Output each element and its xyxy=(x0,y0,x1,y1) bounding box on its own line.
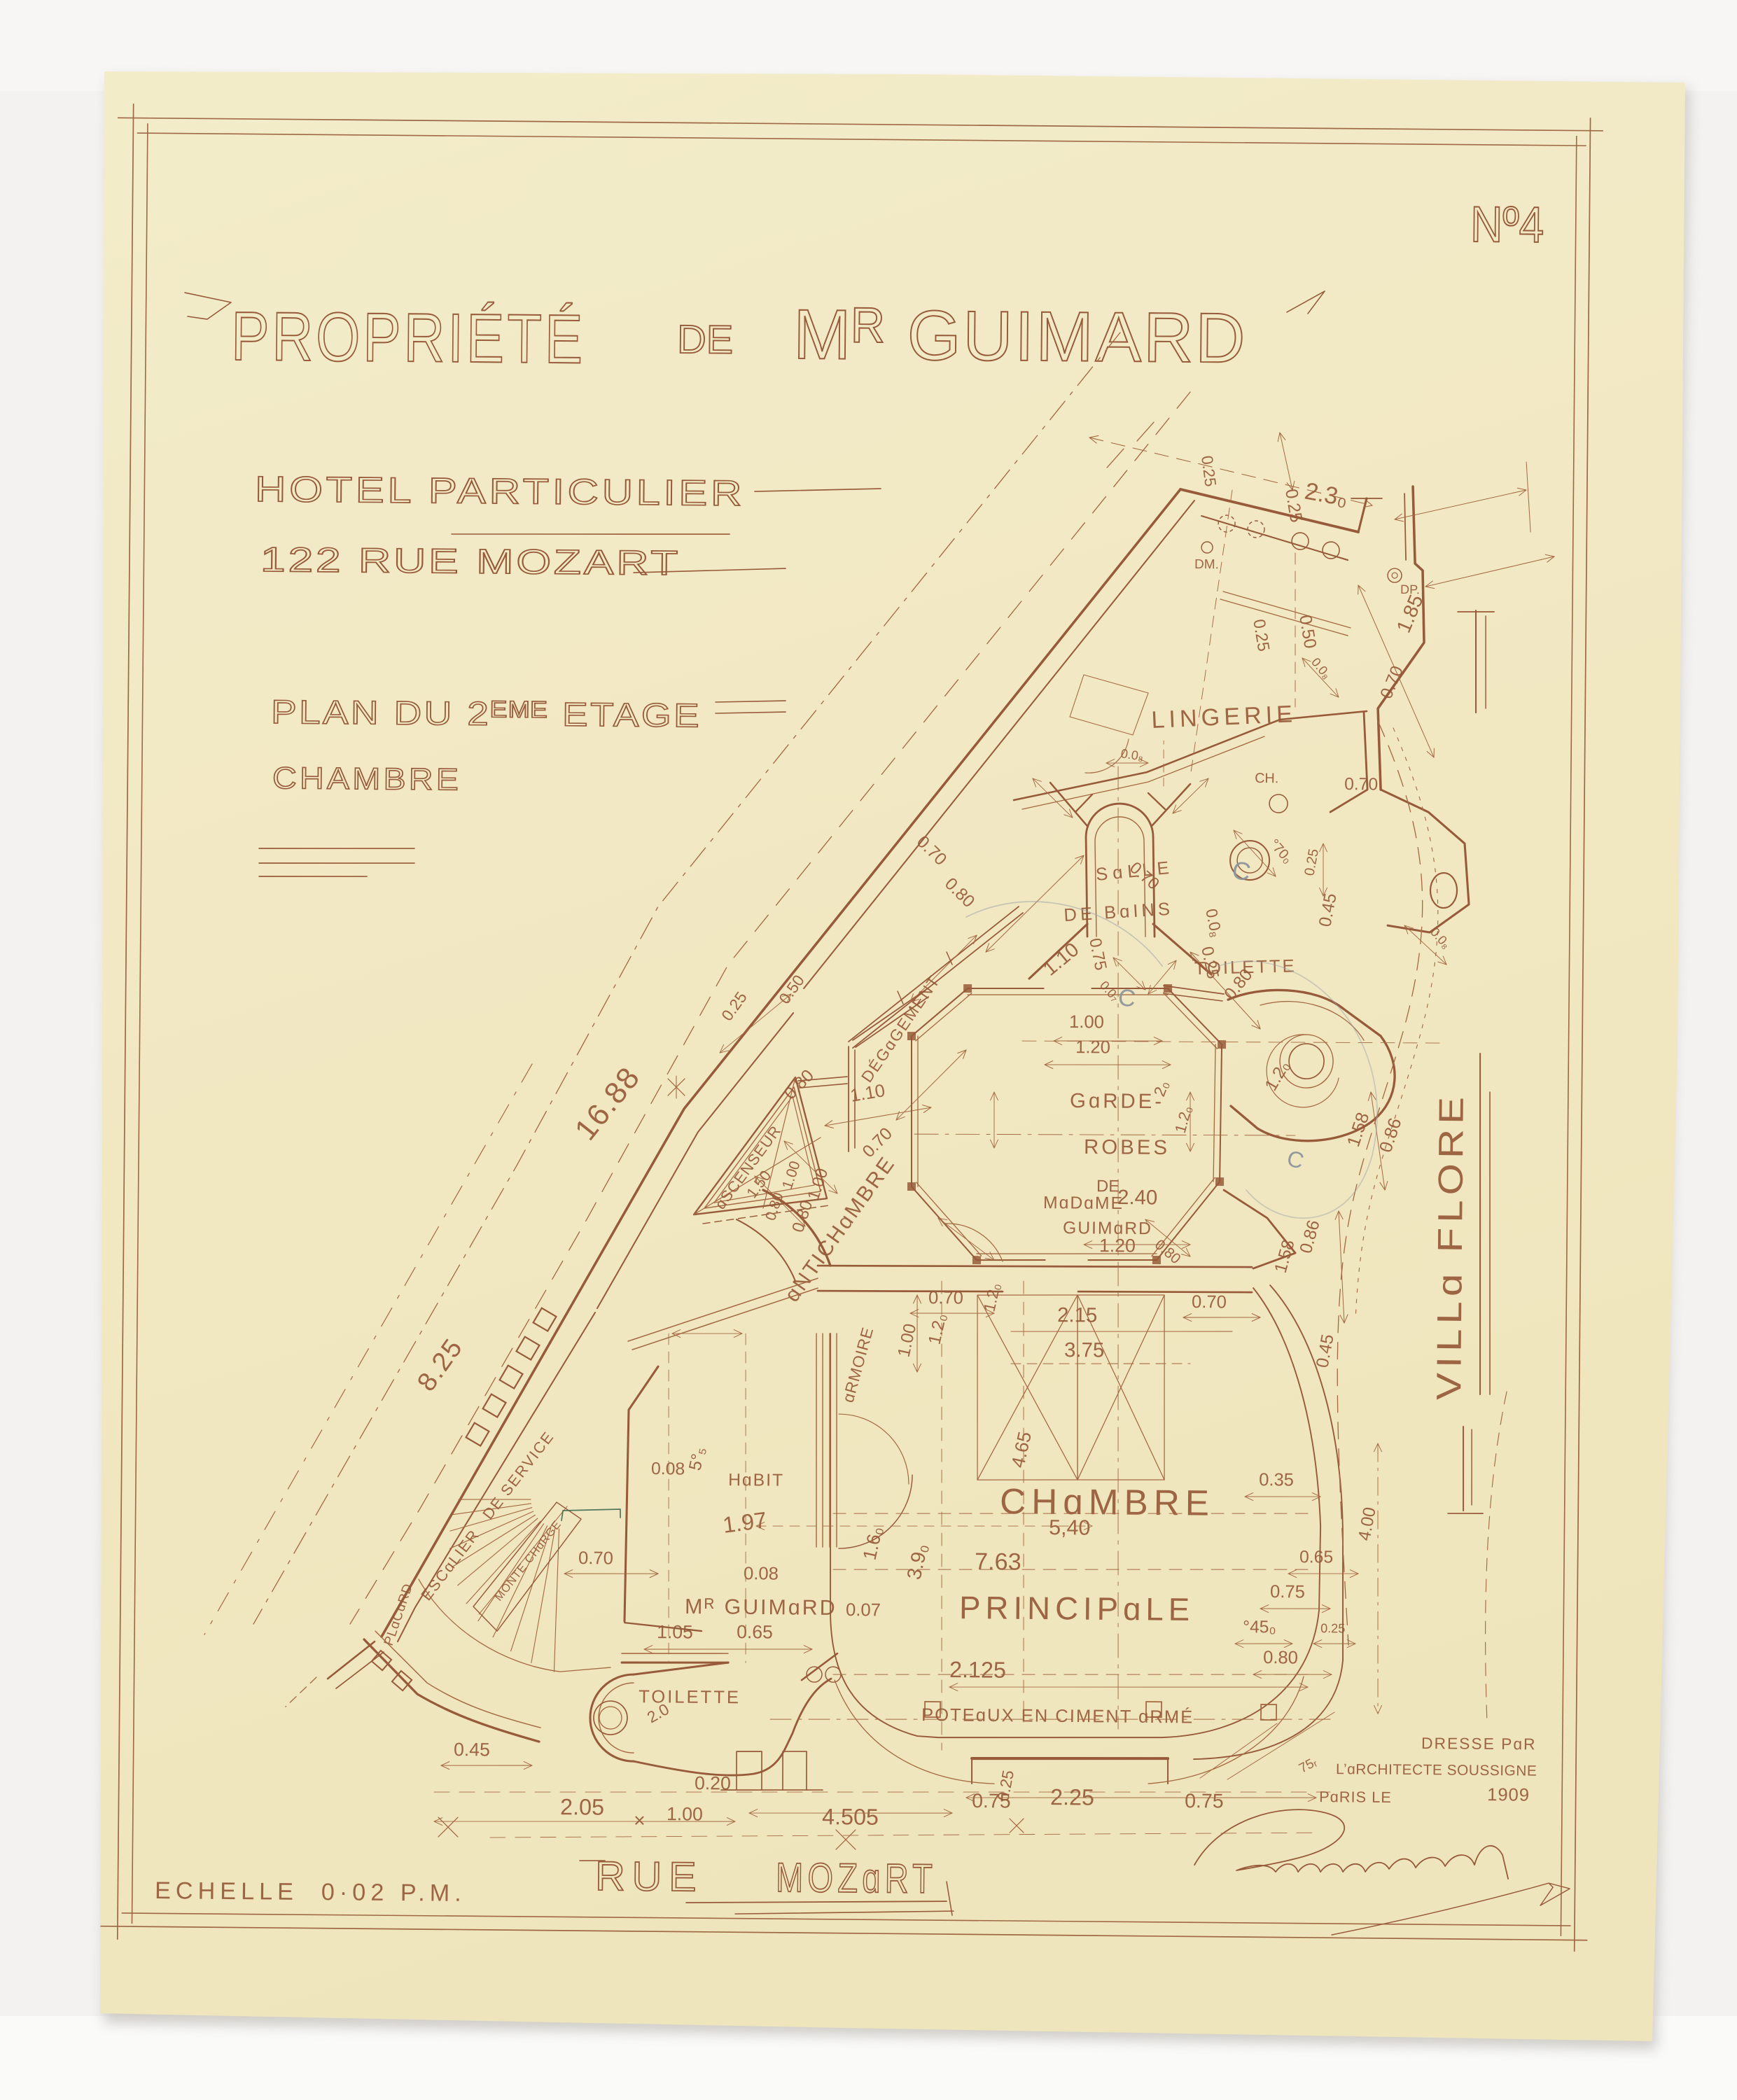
svg-text:MOZɑRT: MOZɑRT xyxy=(776,1855,937,1902)
svg-text:1.00: 1.00 xyxy=(1069,1012,1104,1032)
svg-text:POTEɑUX EN CIMENT ɑRMÉ: POTEɑUX EN CIMENT ɑRMÉ xyxy=(921,1704,1194,1727)
svg-text:0.65: 0.65 xyxy=(1299,1548,1333,1567)
svg-text:DE: DE xyxy=(1096,1177,1119,1196)
svg-text:0.20: 0.20 xyxy=(695,1772,731,1793)
svg-text:0.65: 0.65 xyxy=(737,1621,773,1642)
svg-text:1.20: 1.20 xyxy=(1099,1235,1136,1256)
svg-text:0.08: 0.08 xyxy=(744,1564,779,1583)
svg-text:3.75: 3.75 xyxy=(1064,1338,1104,1361)
svg-text:DM.: DM. xyxy=(1194,557,1219,572)
svg-text:CHAMBRE: CHAMBRE xyxy=(272,761,461,797)
svg-text:L’ɑRCHITECTE SOUSSIGNE: L’ɑRCHITECTE SOUSSIGNE xyxy=(1336,1761,1537,1779)
svg-text:PLAN DU 2ᴱᴹᴱ ETAGE: PLAN DU 2ᴱᴹᴱ ETAGE xyxy=(271,694,702,734)
svg-text:4.505: 4.505 xyxy=(822,1804,879,1830)
svg-text:C: C xyxy=(1117,984,1136,1012)
svg-text:MɑDɑME: MɑDɑME xyxy=(1043,1193,1124,1213)
svg-text:°45₀: °45₀ xyxy=(1243,1618,1276,1637)
svg-text:Nº4: Nº4 xyxy=(1470,197,1544,253)
svg-text:0.75: 0.75 xyxy=(1270,1582,1305,1602)
svg-text:DRESSE PɑR: DRESSE PɑR xyxy=(1421,1734,1537,1753)
svg-text:1909: 1909 xyxy=(1487,1785,1530,1805)
svg-text:Mᴿ GUIMARD: Mᴿ GUIMARD xyxy=(793,295,1248,378)
svg-text:Mᴿ GUIMɑRD: Mᴿ GUIMɑRD xyxy=(685,1595,837,1620)
svg-text:1.05: 1.05 xyxy=(657,1621,693,1642)
svg-text:5,40: 5,40 xyxy=(1049,1515,1090,1540)
svg-text:×: × xyxy=(634,1809,646,1832)
svg-text:0.08: 0.08 xyxy=(651,1459,685,1478)
svg-text:CHɑMBRE: CHɑMBRE xyxy=(1000,1481,1215,1523)
svg-text:0.75: 0.75 xyxy=(1185,1790,1224,1812)
svg-text:1.20: 1.20 xyxy=(1075,1037,1110,1057)
svg-text:PɑRIS LE: PɑRIS LE xyxy=(1319,1788,1392,1806)
svg-text:2.05: 2.05 xyxy=(560,1794,604,1820)
svg-text:0.70: 0.70 xyxy=(1344,775,1378,794)
svg-text:0.70: 0.70 xyxy=(578,1548,613,1568)
svg-text:0.07: 0.07 xyxy=(846,1600,881,1620)
svg-text:0.35: 0.35 xyxy=(1259,1470,1294,1490)
svg-text:7.63: 7.63 xyxy=(975,1548,1021,1576)
svg-text:CH.: CH. xyxy=(1255,771,1278,786)
svg-text:0.80: 0.80 xyxy=(1263,1648,1298,1667)
svg-text:ECHELLE 0·02 P.M.: ECHELLE 0·02 P.M. xyxy=(155,1877,466,1907)
svg-text:2.15: 2.15 xyxy=(1057,1303,1097,1326)
svg-text:ROBES: ROBES xyxy=(1084,1135,1170,1159)
svg-text:HɑBIT: HɑBIT xyxy=(728,1471,784,1490)
svg-text:HOTEL PARTICULIER: HOTEL PARTICULIER xyxy=(255,469,745,513)
svg-text:2.125: 2.125 xyxy=(949,1657,1006,1683)
svg-text:122 RUE MOZART: 122 RUE MOZART xyxy=(260,540,681,582)
svg-text:VILLɑ FLORE: VILLɑ FLORE xyxy=(1430,1092,1471,1400)
svg-text:0.45: 0.45 xyxy=(454,1739,490,1760)
svg-text:0.70: 0.70 xyxy=(928,1288,963,1308)
svg-text:DE: DE xyxy=(677,317,734,363)
svg-text:2.25: 2.25 xyxy=(1050,1784,1094,1810)
svg-text:RUE: RUE xyxy=(595,1854,704,1900)
svg-text:PRINCIPɑLE: PRINCIPɑLE xyxy=(959,1590,1194,1627)
svg-text:0.25: 0.25 xyxy=(1320,1621,1345,1635)
svg-text:0.70: 0.70 xyxy=(1192,1292,1227,1312)
svg-text:PROPRIÉTÉ: PROPRIÉTÉ xyxy=(231,297,586,377)
